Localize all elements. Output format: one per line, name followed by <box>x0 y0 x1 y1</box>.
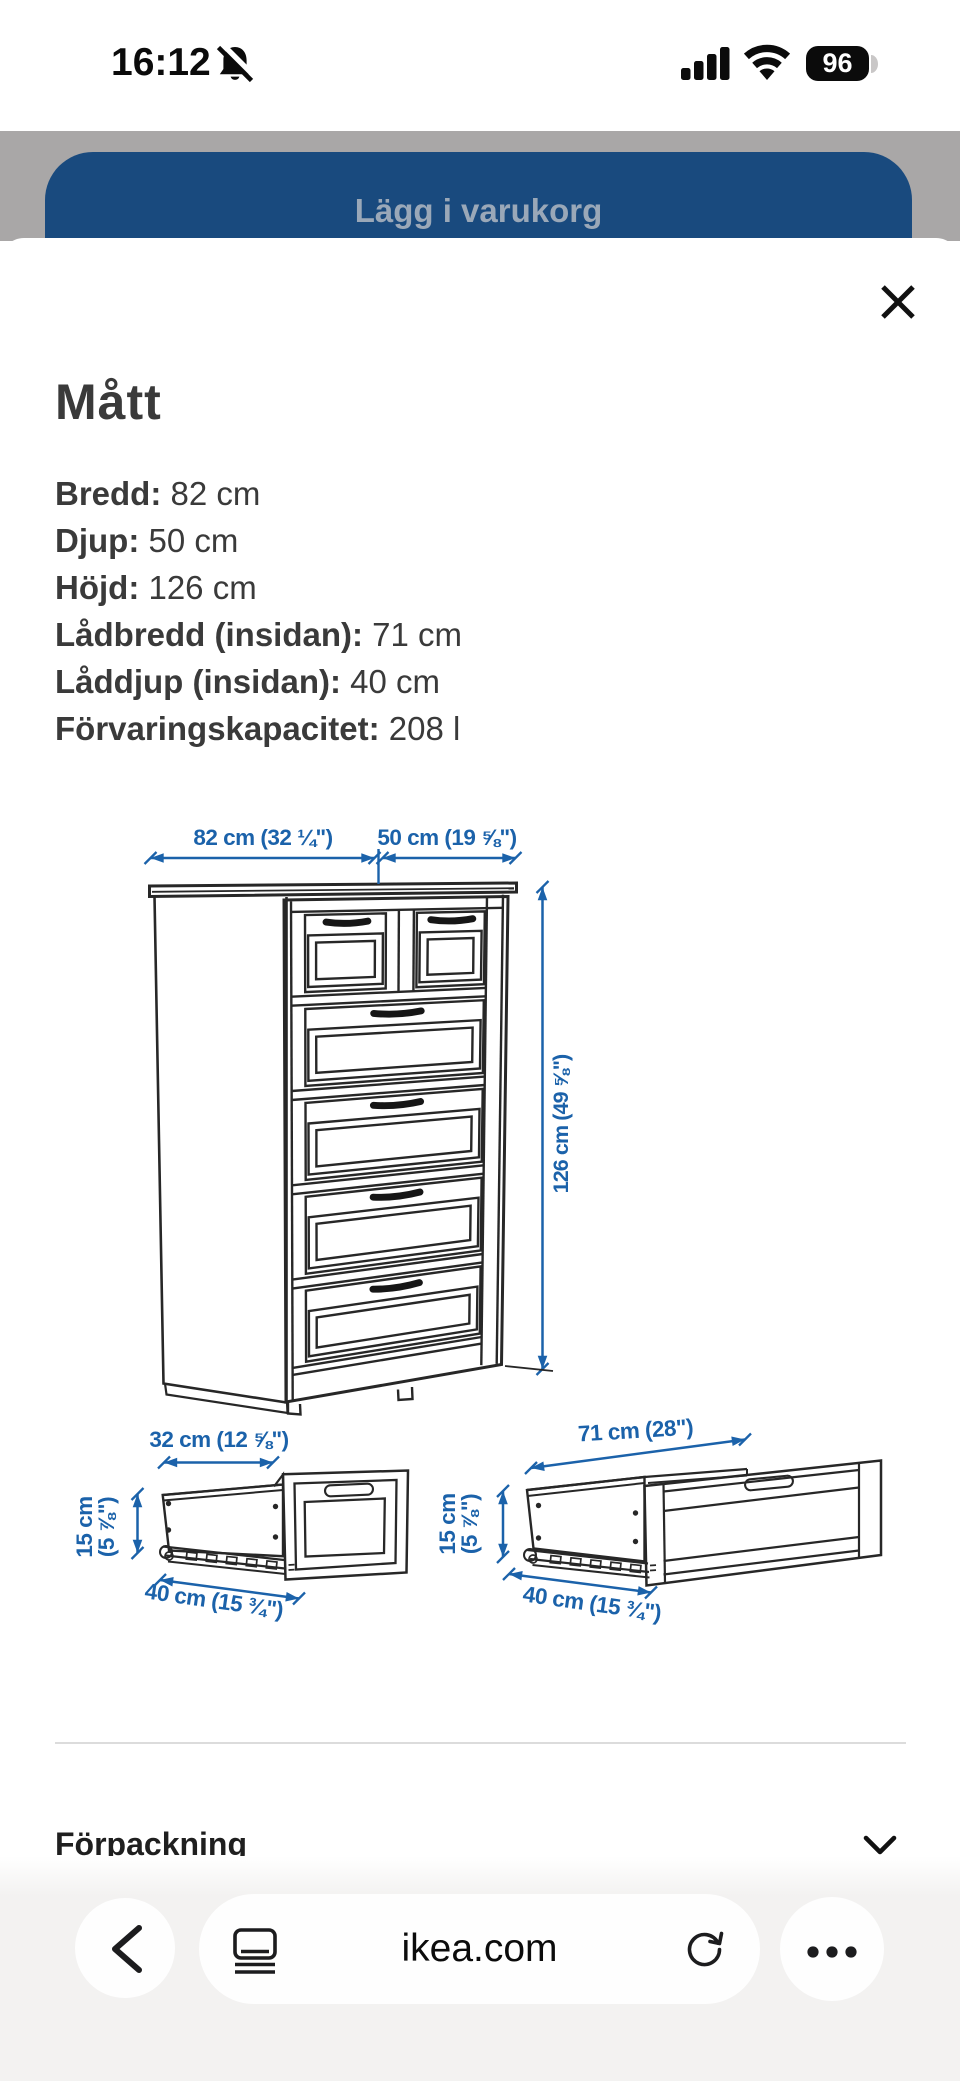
svg-text:50 cm (19 ⅝"): 50 cm (19 ⅝") <box>377 825 516 850</box>
svg-text:126 cm (49 ⅝"): 126 cm (49 ⅝") <box>549 1054 573 1193</box>
svg-text:71 cm (28"): 71 cm (28") <box>577 1415 694 1447</box>
svg-text:(5 ⅞"): (5 ⅞") <box>94 1497 119 1557</box>
svg-text:(5 ⅞"): (5 ⅞") <box>457 1494 482 1554</box>
svg-text:32 cm (12 ⅝"): 32 cm (12 ⅝") <box>149 1427 288 1452</box>
svg-text:82 cm (32 ¼"): 82 cm (32 ¼") <box>193 825 332 850</box>
svg-text:40 cm (15 ¾"): 40 cm (15 ¾") <box>143 1579 284 1623</box>
